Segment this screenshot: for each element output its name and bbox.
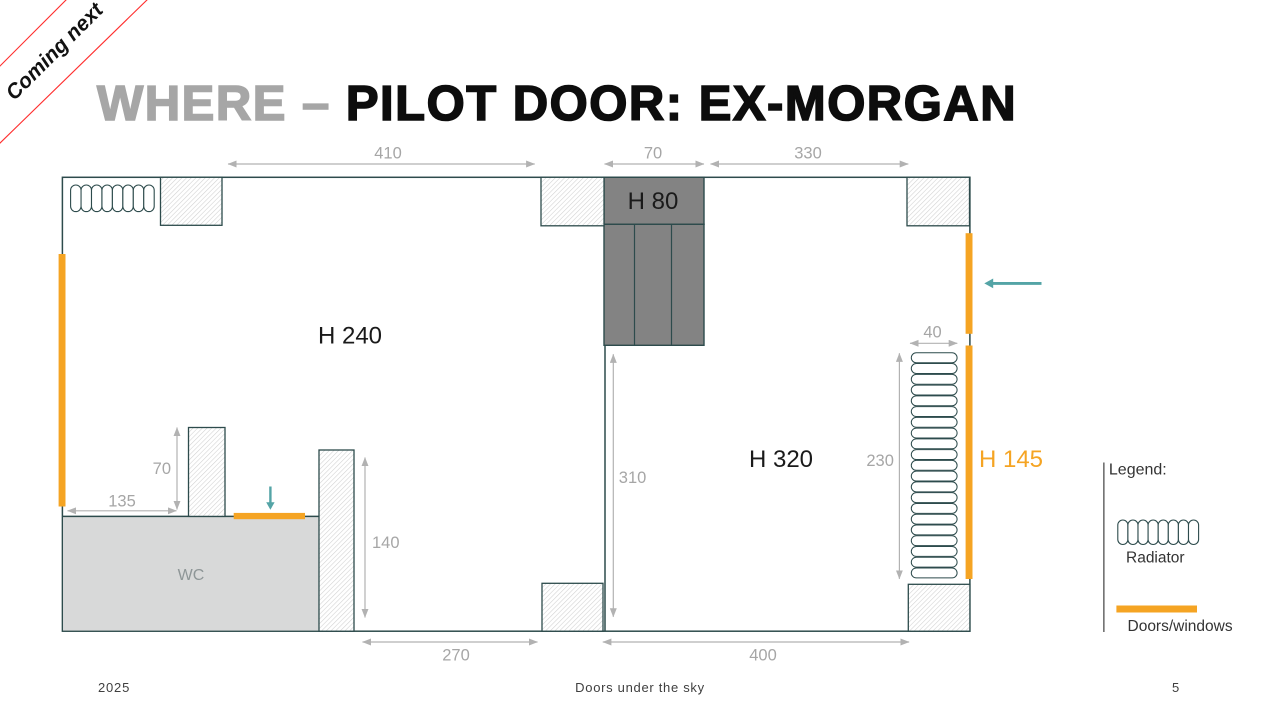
svg-text:70: 70: [644, 145, 662, 163]
svg-text:Legend:: Legend:: [1109, 461, 1167, 478]
svg-text:WC: WC: [178, 567, 205, 584]
svg-text:410: 410: [374, 145, 402, 163]
svg-text:H 145: H 145: [979, 446, 1043, 473]
svg-text:70: 70: [153, 460, 171, 478]
svg-text:135: 135: [108, 493, 136, 511]
svg-text:H 240: H 240: [318, 323, 382, 350]
svg-text:270: 270: [442, 647, 470, 665]
svg-text:310: 310: [619, 469, 647, 487]
svg-text:400: 400: [749, 647, 777, 665]
svg-text:40: 40: [923, 324, 941, 342]
svg-text:140: 140: [372, 534, 400, 552]
svg-text:230: 230: [866, 452, 894, 470]
svg-text:Doors/windows: Doors/windows: [1128, 618, 1233, 635]
svg-text:H 320: H 320: [749, 446, 813, 473]
svg-text:H 80: H 80: [628, 188, 679, 215]
svg-text:330: 330: [794, 145, 822, 163]
svg-text:Radiator: Radiator: [1126, 549, 1185, 566]
